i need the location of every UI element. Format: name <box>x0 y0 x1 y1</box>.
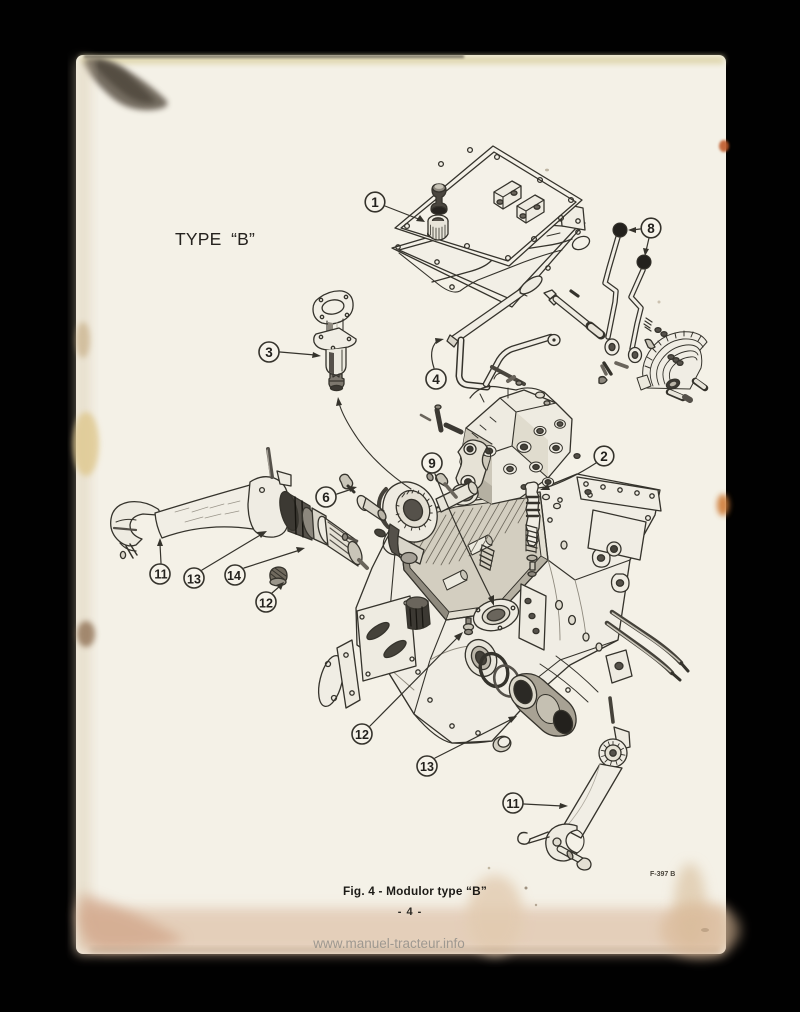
svg-text:6: 6 <box>322 490 330 505</box>
svg-text:TYPE “B”: TYPE “B” <box>175 229 255 249</box>
svg-text:- 4 -: - 4 - <box>398 906 423 918</box>
svg-text:11: 11 <box>506 797 519 811</box>
svg-text:11: 11 <box>154 568 167 582</box>
svg-text:13: 13 <box>187 573 201 587</box>
svg-text:Fig. 4 - Modulor type “B”: Fig. 4 - Modulor type “B” <box>343 884 487 898</box>
svg-text:13: 13 <box>420 760 434 774</box>
svg-text:12: 12 <box>355 728 369 742</box>
svg-text:1: 1 <box>371 195 379 210</box>
svg-text:14: 14 <box>227 569 241 583</box>
svg-text:www.manuel-tracteur.info: www.manuel-tracteur.info <box>312 936 465 951</box>
svg-text:8: 8 <box>647 221 655 236</box>
svg-text:3: 3 <box>265 345 273 360</box>
svg-text:F-397 B: F-397 B <box>650 871 675 878</box>
svg-text:2: 2 <box>600 449 608 464</box>
svg-text:4: 4 <box>432 372 440 387</box>
svg-text:12: 12 <box>259 597 273 611</box>
svg-text:9: 9 <box>428 456 436 471</box>
